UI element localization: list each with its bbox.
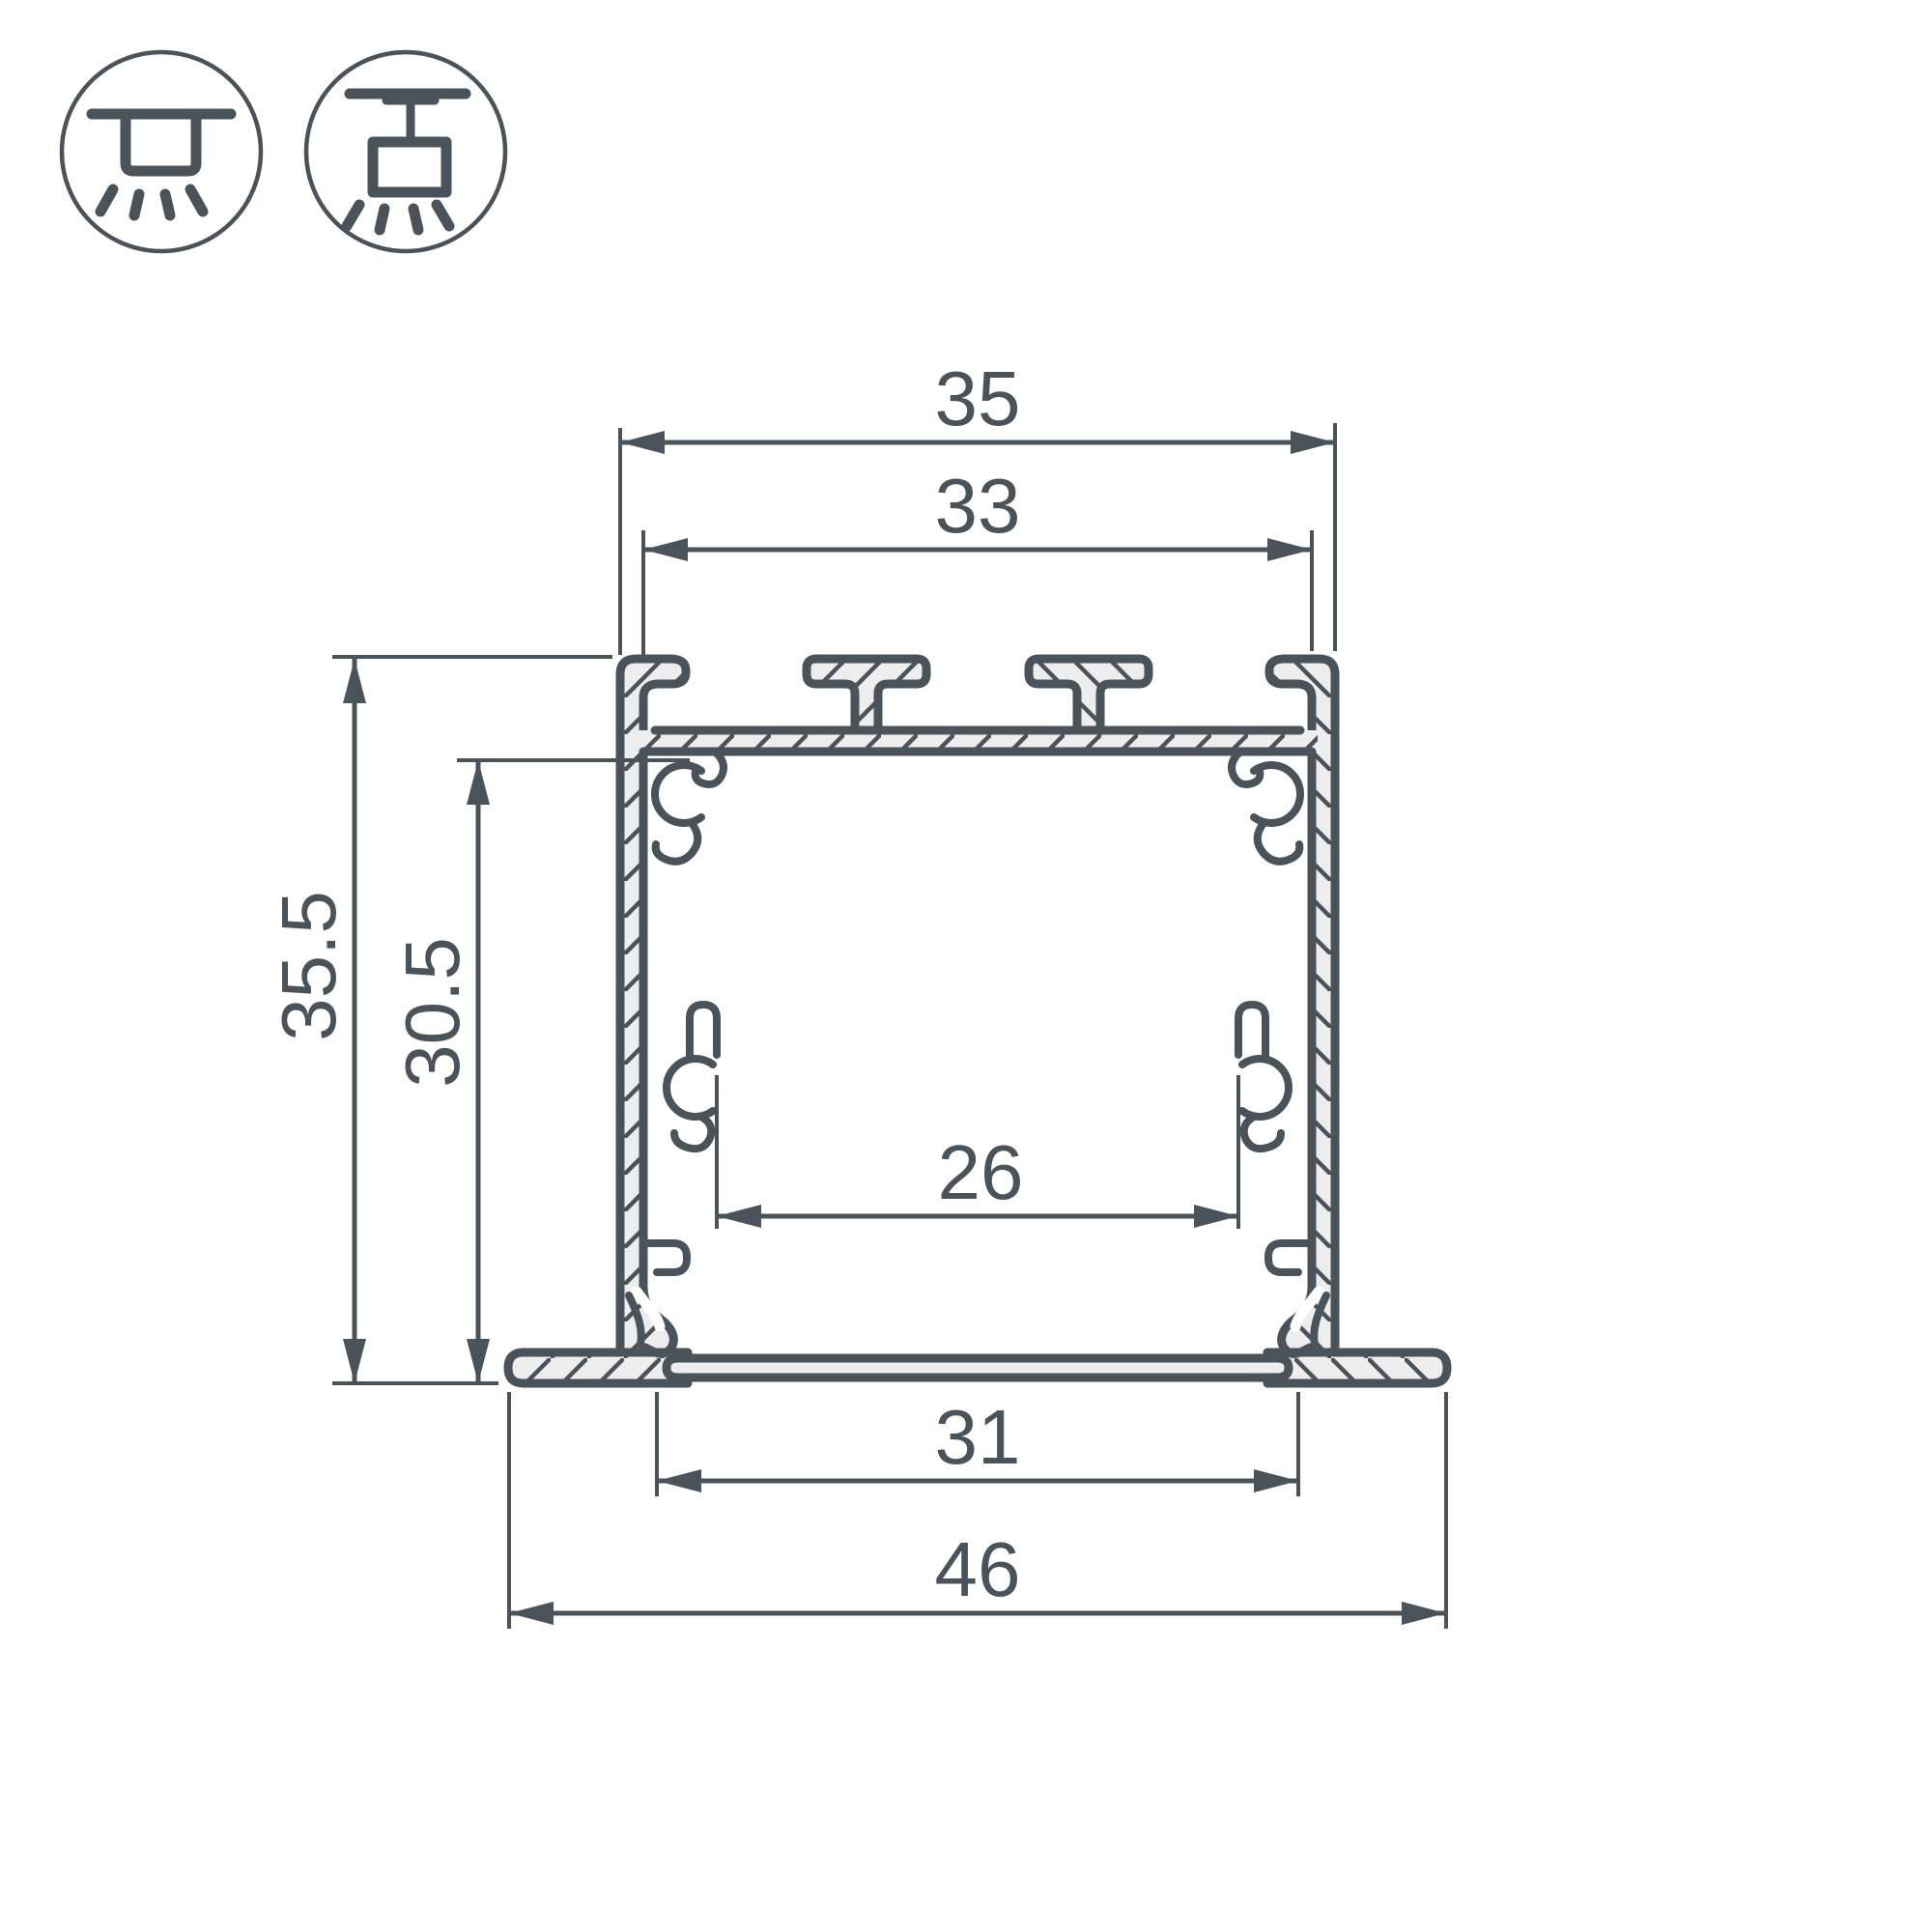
dim-inner-width: 26 [717,1075,1238,1229]
dim-overall-width-label: 46 [935,1526,1021,1612]
dim-top-opening-width: 33 [643,463,1312,655]
dim-base-width-label: 31 [935,1394,1021,1480]
dim-inner-width-label: 26 [938,1129,1024,1215]
profile-right-half [1029,659,1447,1383]
dim-top-width-label: 35 [935,355,1021,441]
technical-drawing-page: 35 33 35.5 30.5 26 [0,0,1932,1932]
profile-bottom-tray [667,1358,1289,1378]
profile-left-half [508,659,926,1383]
dimension-annotations: 35 33 35.5 30.5 26 [266,355,1446,1629]
surface-mount-icon [306,52,505,251]
mount-type-icons [62,52,505,251]
dim-top-opening-label: 33 [935,463,1021,549]
dim-base-width: 31 [657,1392,1298,1496]
dim-overall-height-label: 35.5 [266,891,352,1041]
profile-dimension-drawing: 35 33 35.5 30.5 26 [0,0,1932,1932]
dim-inner-height-label: 30.5 [389,937,475,1088]
profile-cross-section [508,659,1447,1383]
recessed-mount-icon [62,52,261,251]
profile-top-plate [638,730,1318,752]
